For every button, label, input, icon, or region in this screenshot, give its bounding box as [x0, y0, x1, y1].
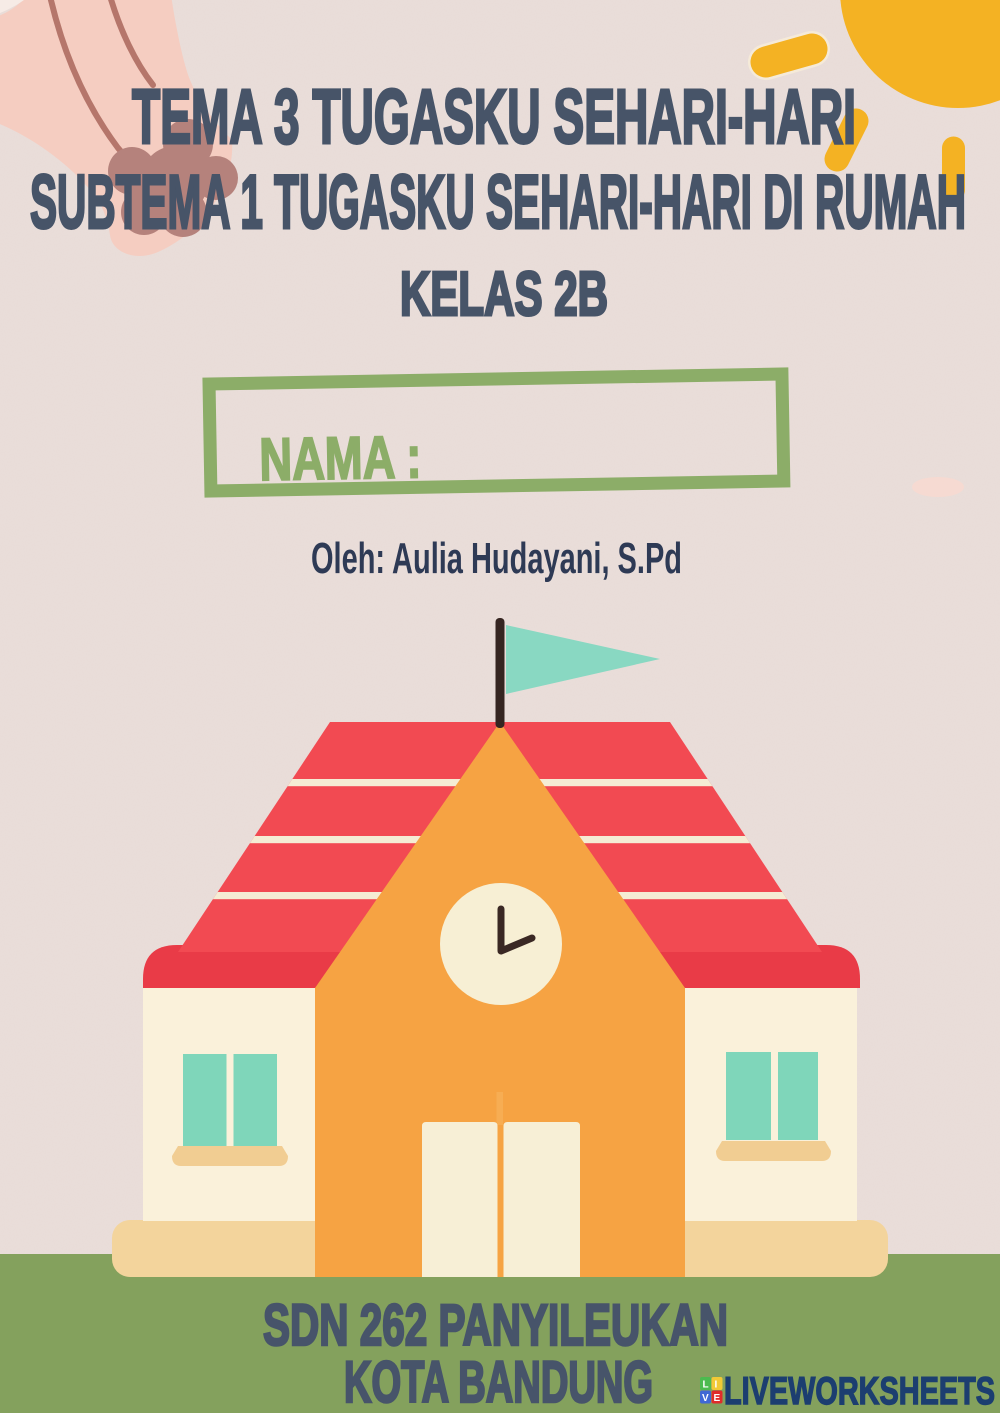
svg-text:NAMA :: NAMA :	[259, 423, 422, 493]
svg-text:SDN 262 PANYILEUKAN: SDN 262 PANYILEUKAN	[263, 1293, 728, 1358]
svg-text:I: I	[715, 1380, 718, 1391]
svg-text:KELAS 2B: KELAS 2B	[400, 260, 608, 329]
svg-text:KOTA BANDUNG: KOTA BANDUNG	[344, 1350, 653, 1413]
svg-text:LIVEWORKSHEETS: LIVEWORKSHEETS	[724, 1370, 995, 1413]
svg-text:E: E	[714, 1393, 721, 1404]
svg-text:TEMA 3 TUGASKU SEHARI-HARI: TEMA 3 TUGASKU SEHARI-HARI	[132, 74, 856, 160]
svg-text:L: L	[703, 1380, 709, 1391]
svg-text:V: V	[702, 1393, 709, 1404]
svg-text:Oleh: Aulia Hudayani, S.Pd: Oleh: Aulia Hudayani, S.Pd	[311, 534, 682, 583]
svg-text:SUBTEMA 1 TUGASKU SEHARI-HARI: SUBTEMA 1 TUGASKU SEHARI-HARI DI RUMAH	[30, 160, 966, 245]
